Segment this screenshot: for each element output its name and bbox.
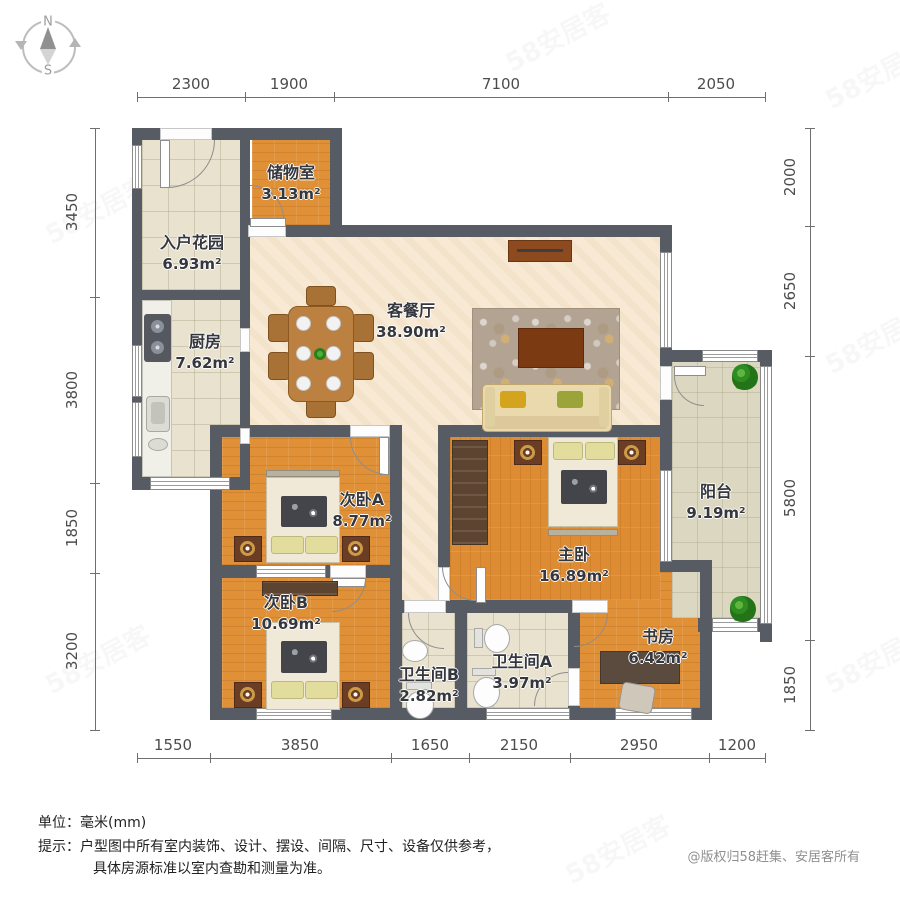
table-plant [314,348,326,360]
window [660,252,672,348]
lamp [624,445,639,460]
bed-a [266,477,340,563]
door-opening [568,668,580,706]
plate [296,316,311,331]
stove [144,314,171,362]
room-label-balcony: 阳台 9.19m² [686,481,745,523]
dim-line-bottom [137,758,765,759]
coffee-table [518,328,584,368]
sofa-pillow-green [557,391,583,408]
room-area: 7.62m² [175,353,234,373]
door-opening [572,600,608,613]
dim-label: 1550 [154,736,192,754]
dining-chair [268,352,290,380]
dining-chair [352,352,374,380]
sofa-armrest [485,387,495,427]
room-label-bathroom-b: 卫生间B 2.82m² [399,664,459,706]
floor-corridor [402,425,438,600]
lamp [348,687,363,702]
watermark-text: 58安居客 [818,30,900,116]
tip-label: 提示： [38,839,80,855]
pillow [305,536,338,554]
room-area: 2.82m² [399,686,459,706]
unit-value: 毫米(mm) [80,815,146,831]
toilet-tank [474,628,483,648]
pillow [271,536,304,554]
dim-line-top [137,97,765,98]
plant [730,596,756,622]
tv [517,249,563,252]
watermark-text: 58安居客 [818,615,900,701]
plant [732,364,758,390]
compass-needle-south [40,49,56,65]
tv-stand [508,240,572,262]
room-area: 38.90m² [376,322,446,342]
compass-arrow-west [15,41,27,50]
copyright-text: @版权归58赶集、安居客所有 [687,846,860,865]
room-area: 6.93m² [160,254,224,274]
blanket [561,470,607,504]
wardrobe [452,440,488,545]
window [760,366,772,624]
door-opening [330,565,366,578]
dim-label: 2300 [172,75,210,93]
room-name: 书房 [628,626,687,648]
room-label-entry-garden: 入户花园 6.93m² [160,232,224,274]
room-name: 厨房 [175,331,234,353]
door-opening [404,600,446,613]
room-name: 次卧B [251,592,321,614]
window [256,565,326,578]
unit-note: 单位：毫米(mm) [38,812,146,832]
desk-chair [618,681,656,714]
dim-label: 3200 [63,632,81,670]
bed-b [266,622,340,710]
sink [402,640,428,662]
pillow [553,442,583,460]
room-name: 阳台 [686,481,745,503]
room-label-bathroom-a: 卫生间A 3.97m² [492,651,552,693]
dim-label: 3450 [63,193,81,231]
dim-label: 1200 [718,736,756,754]
pillow [271,681,304,699]
room-name: 主卧 [539,544,609,566]
pillow [585,442,615,460]
room-label-storage: 储物室 3.13m² [261,162,320,204]
room-area: 8.77m² [332,511,391,531]
tip-note-line1: 提示：户型图中所有室内装饰、设计、摆设、间隔、尺寸、设备仅供参考， [38,836,500,856]
dim-label: 2650 [781,272,799,310]
lamp [348,541,363,556]
dim-line-left [95,128,96,730]
bed-master [548,437,618,527]
room-label-bedroom-b: 次卧B 10.69m² [251,592,321,634]
room-area: 3.13m² [261,184,320,204]
compass-south-label: S [42,64,54,79]
dining-chair [268,314,290,342]
lamp [240,541,255,556]
lamp [240,687,255,702]
bed-bench [266,470,340,477]
tip-text-1: 户型图中所有室内装饰、设计、摆设、间隔、尺寸、设备仅供参考， [80,839,500,855]
compass: N S [16,14,80,78]
room-label-study: 书房 6.42m² [628,626,687,668]
door-leaf [250,218,286,227]
kitchen-sink [146,396,170,432]
plate [326,376,341,391]
door-opening [160,128,212,140]
watermark-text: 58安居客 [38,615,156,701]
tip-text-2: 具体房源标准以室内查勘和测量为准。 [93,861,331,877]
watermark-text: 58安居客 [558,805,676,891]
room-name: 储物室 [261,162,320,184]
window [132,345,142,397]
dim-label: 1650 [411,736,449,754]
sofa [482,384,612,432]
door-opening [240,328,250,352]
sofa-armrest [599,387,609,427]
tip-note-line2: 具体房源标准以室内查勘和测量为准。 [93,858,331,878]
window [132,145,142,189]
door-opening [240,428,250,444]
room-name: 入户花园 [160,232,224,254]
dim-label: 1900 [270,75,308,93]
dim-label: 2150 [500,736,538,754]
wall [700,560,712,720]
room-label-kitchen: 厨房 7.62m² [175,331,234,373]
dining-chair [306,286,336,306]
room-name: 卫生间A [492,651,552,673]
dim-label: 5800 [781,479,799,517]
dim-label: 3800 [63,371,81,409]
dim-label: 1850 [63,509,81,547]
dim-label: 3850 [281,736,319,754]
room-name: 次卧A [332,489,391,511]
plate [326,316,341,331]
plate [296,376,311,391]
blanket [281,641,327,673]
dim-label: 2050 [697,75,735,93]
room-name: 卫生间B [399,664,459,686]
sink-oval [148,438,168,451]
toilet [484,624,510,653]
window [486,708,570,720]
burner [151,341,164,354]
wall [132,290,250,300]
dim-label: 1850 [781,666,799,704]
compass-needle-north [40,27,56,49]
room-area: 6.42m² [628,648,687,668]
door-leaf [674,366,706,376]
blanket [281,496,327,527]
window [702,350,758,362]
door-leaf [476,567,486,603]
window [150,477,230,490]
pillow [305,681,338,699]
sink-basin [151,402,165,424]
room-name: 客餐厅 [376,300,446,322]
unit-label: 单位： [38,815,80,831]
floorplan-page: 58安居客 58安居客 58安居客 58安居客 58安居客 58安居客 58安居… [0,0,900,900]
burner [151,320,164,333]
door-opening [350,425,390,437]
sofa-pillow-yellow [500,391,526,408]
plate [326,346,341,361]
bed-bench [548,529,618,536]
wall [240,225,672,237]
dim-label: 2950 [620,736,658,754]
room-area: 9.19m² [686,503,745,523]
room-label-master-bedroom: 主卧 16.89m² [539,544,609,586]
window [132,402,142,457]
lamp [520,445,535,460]
window [660,470,672,562]
compass-arrow-east [69,38,81,47]
dim-label: 7100 [482,75,520,93]
plate [296,346,311,361]
room-area: 16.89m² [539,566,609,586]
dim-label: 2000 [781,158,799,196]
room-label-bedroom-a: 次卧A 8.77m² [332,489,391,531]
watermark-text: 58安居客 [818,295,900,381]
room-label-living-dining: 客餐厅 38.90m² [376,300,446,342]
watermark-text: 58安居客 [498,0,616,80]
room-area: 10.69m² [251,614,321,634]
door-opening [660,366,672,400]
dining-chair [352,314,374,342]
sofa-back [485,416,607,429]
room-area: 3.97m² [492,673,552,693]
wall [330,128,342,237]
